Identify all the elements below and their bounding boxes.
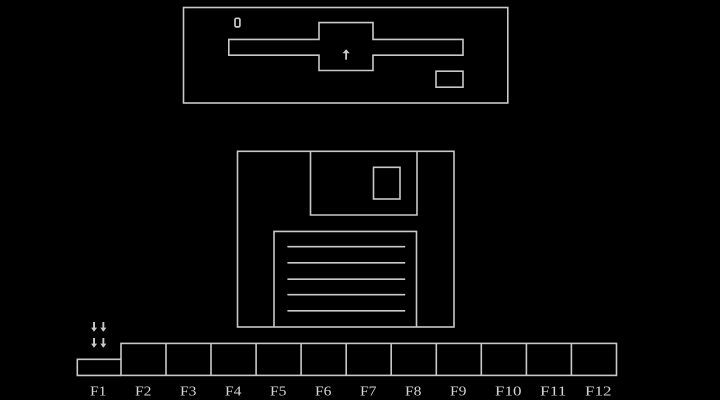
svg-text:F5: F5 <box>270 385 287 400</box>
svg-text:F11: F11 <box>540 385 567 400</box>
svg-text:F12: F12 <box>585 385 612 400</box>
svg-text:F1: F1 <box>90 385 107 400</box>
svg-text:F4: F4 <box>225 385 242 400</box>
svg-text:F8: F8 <box>405 385 422 400</box>
svg-text:F7: F7 <box>360 385 377 400</box>
svg-text:F3: F3 <box>180 385 197 400</box>
svg-text:F6: F6 <box>315 385 332 400</box>
svg-text:F9: F9 <box>450 385 467 400</box>
svg-text:F2: F2 <box>135 385 152 400</box>
svg-text:F10: F10 <box>495 385 522 400</box>
